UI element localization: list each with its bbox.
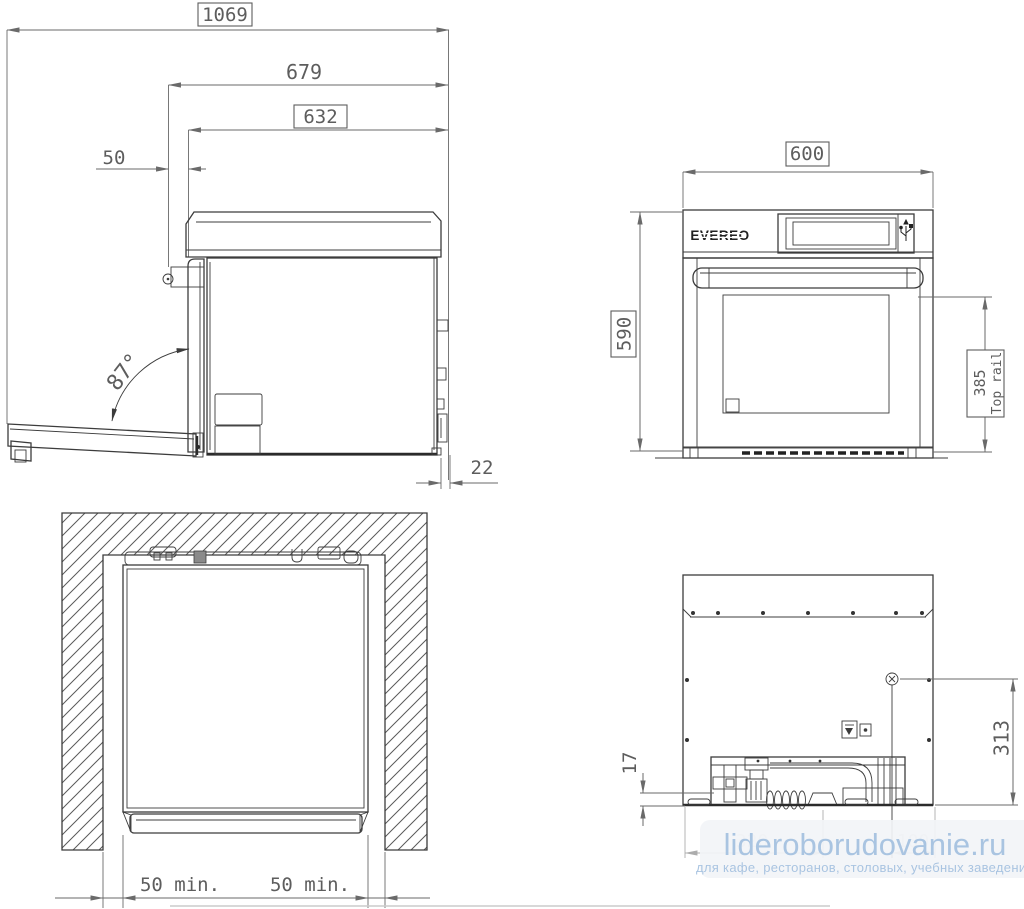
dim-top-rail: 385 Top rail <box>918 297 1005 452</box>
dim-front-height-value: 590 <box>614 317 636 351</box>
brand-logo-text: EVEREO <box>690 228 749 243</box>
watermark-tagline: для кафе, ресторанов, столовых, учебных … <box>696 860 1024 875</box>
display-panel[interactable] <box>778 214 914 253</box>
drawing-svg: 1069 679 632 50 <box>0 0 1024 909</box>
dim-rear-gap: 22 <box>416 455 498 489</box>
watermark-site: lideroborudovanie.ru <box>724 827 1007 862</box>
dim-left-clearance-value: 50 min. <box>140 874 220 896</box>
door-hinge <box>193 433 203 457</box>
dim-front-width-value: 600 <box>790 143 824 165</box>
door-window <box>723 295 889 413</box>
evereo-logo: EVEREO <box>690 228 749 243</box>
dim-depth-door-open: 679 <box>169 60 449 267</box>
dim-front-height: 590 <box>611 212 683 451</box>
dim-depth-body: 632 <box>189 105 449 257</box>
cable-gland-icon <box>886 673 898 685</box>
junction-box <box>843 788 903 805</box>
door-handle-side <box>11 441 31 461</box>
front-view: 600 EVEREO <box>611 142 1005 458</box>
dim-rear-gap-value: 22 <box>471 457 494 479</box>
door-handle-front[interactable] <box>693 268 923 288</box>
side-view-door-open: 1069 679 632 50 <box>7 3 498 489</box>
rear-side-screws <box>685 678 931 742</box>
control-panel-band: EVEREO <box>683 210 933 258</box>
window-corner-detail <box>726 399 739 412</box>
dim-rear-bottom-offset: 17 <box>619 752 714 826</box>
rear-screw-row <box>683 609 933 617</box>
dim-door-angle-value: 87° <box>102 349 146 396</box>
dim-depth-door-open-value: 679 <box>286 60 322 84</box>
dim-right-clearance-value: 50 min. <box>270 874 350 896</box>
usb-icon <box>900 220 913 241</box>
plan-view-installation: 50 min. 50 min. <box>55 513 430 908</box>
dim-top-rail-label: Top rail <box>990 352 1005 415</box>
dim-side-clearances: 50 min. 50 min. <box>55 835 430 908</box>
watermark: lideroborudovanie.ru для кафе, ресторано… <box>696 820 1024 878</box>
niche-walls-hatched <box>62 513 427 850</box>
plumbing-assembly <box>683 757 933 809</box>
dim-front-offset: 50 <box>96 147 206 169</box>
dim-depth-body-value: 632 <box>303 106 337 128</box>
dim-total-width-value: 1069 <box>202 4 248 26</box>
duct-inner <box>770 768 866 802</box>
door-plan <box>123 812 368 833</box>
dim-front-width: 600 <box>683 142 933 208</box>
drain-symbols <box>842 721 871 738</box>
valve-cross <box>713 765 747 802</box>
door-latch <box>163 267 204 287</box>
oven-door-front <box>655 258 948 458</box>
dim-connection-height-value: 313 <box>990 720 1014 756</box>
corrugated-hose <box>767 791 806 809</box>
rear-view: 17 313 320 100 <box>619 575 1018 858</box>
dim-rear-bottom-offset-value: 17 <box>619 752 641 775</box>
oven-plan <box>123 547 368 833</box>
dim-front-offset-value: 50 <box>103 147 126 169</box>
oven-door-open <box>8 424 203 462</box>
oven-body-side <box>163 212 448 455</box>
touch-display[interactable] <box>793 222 889 245</box>
dim-total-width: 1069 <box>7 3 449 480</box>
dim-door-angle: 87° <box>102 349 189 421</box>
bottom-vent-strip <box>683 448 933 458</box>
rear-panel <box>683 575 933 805</box>
dim-connection-height: 313 <box>900 679 1018 805</box>
drain-outlet <box>808 793 837 805</box>
technical-drawing-oven: 1069 679 632 50 <box>0 0 1024 909</box>
dim-top-rail-value: 385 <box>971 369 989 396</box>
